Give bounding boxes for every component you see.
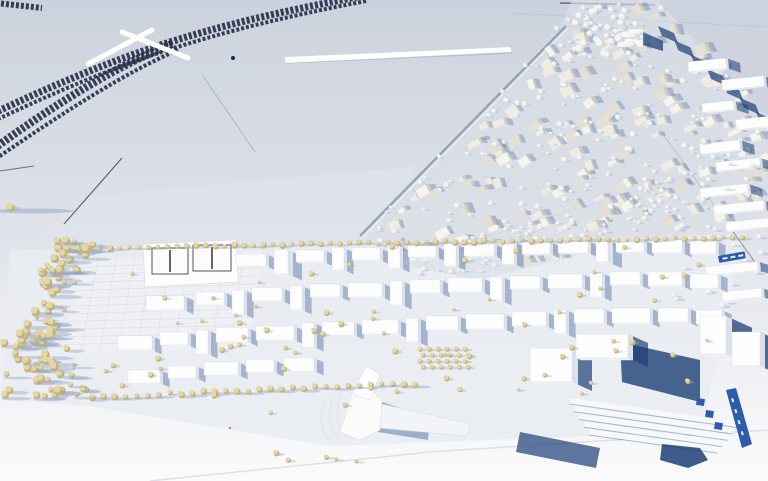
model-tree [605, 237, 609, 241]
model-tree [521, 376, 525, 380]
model-tree [629, 339, 634, 344]
model-tree [581, 5, 585, 9]
model-tree [1, 391, 7, 397]
model-tree [658, 6, 663, 11]
model-tree [691, 114, 695, 118]
building-side [184, 296, 187, 311]
model-tree [32, 391, 38, 397]
building-top [362, 320, 398, 334]
model-tree [652, 192, 654, 194]
model-tree [648, 208, 652, 212]
building-front [410, 293, 443, 294]
model-tree [443, 238, 447, 242]
model-tree [705, 195, 708, 198]
model-tree [625, 237, 628, 240]
building-side [604, 309, 607, 324]
model-tree [448, 269, 452, 273]
model-tree [592, 8, 596, 12]
model-tree [309, 271, 313, 275]
model-tree [691, 151, 694, 154]
model-tree [645, 185, 649, 189]
model-tree [652, 169, 656, 173]
model-tree [430, 365, 434, 369]
model-tree [404, 239, 408, 243]
model-tree [549, 132, 552, 135]
model-tree [0, 338, 6, 344]
model-tree [111, 393, 117, 399]
building-front [352, 260, 383, 261]
model-tree [597, 4, 601, 8]
model-tree [519, 186, 522, 189]
building-top [256, 326, 294, 340]
building-side [382, 283, 385, 298]
model-tree [573, 37, 575, 39]
model-tree [630, 131, 635, 136]
model-tree [203, 242, 208, 247]
model-building [554, 310, 576, 338]
model-tree [521, 208, 523, 210]
building-side [402, 281, 405, 306]
model-tree [81, 244, 88, 251]
model-tree [342, 402, 346, 406]
model-tree [445, 359, 449, 363]
model-tree [438, 188, 441, 191]
model-tree [200, 319, 203, 322]
model-tree [347, 262, 350, 265]
model-tree [223, 388, 227, 392]
model-tree [632, 228, 635, 231]
building-front [658, 322, 691, 323]
model-tree [701, 197, 705, 201]
model-tree [613, 348, 617, 352]
model-tree [721, 235, 725, 239]
model-tree [665, 69, 669, 73]
model-tree [502, 140, 505, 143]
model-tree [622, 245, 626, 249]
building-side [582, 274, 585, 289]
model-tree [598, 232, 601, 235]
model-tree [488, 201, 492, 205]
model-tree [615, 237, 619, 241]
model-building [502, 242, 524, 268]
model-tree [156, 245, 160, 249]
model-tree [528, 222, 531, 225]
model-tree [517, 234, 519, 236]
building-top [464, 244, 494, 256]
model-tree [726, 300, 729, 303]
model-tree [72, 279, 76, 283]
model-tree [617, 3, 620, 6]
building-front [466, 329, 507, 330]
building-top [502, 242, 514, 264]
model-building [390, 281, 412, 309]
model-tree [678, 169, 682, 173]
model-tree [667, 177, 671, 181]
model-tree [577, 292, 582, 297]
model-tree [156, 392, 160, 396]
model-tree [433, 239, 438, 244]
model-tree [345, 383, 350, 388]
building-side [314, 358, 317, 372]
model-tree [730, 282, 733, 285]
model-tree [43, 318, 48, 323]
building-front [548, 288, 585, 289]
model-tree [107, 245, 112, 250]
model-tree [241, 242, 246, 247]
model-tree [283, 345, 287, 349]
building-top [196, 330, 208, 354]
model-tree [589, 381, 592, 384]
model-tree [643, 189, 646, 192]
building-side [482, 278, 485, 293]
model-tree [286, 457, 290, 461]
building-side [354, 322, 357, 336]
model-tree [557, 121, 562, 126]
model-tree [48, 387, 52, 391]
model-tree [500, 239, 504, 243]
model-tree [418, 180, 422, 184]
model-tree [439, 365, 443, 369]
model-tree [632, 86, 635, 89]
building-top [118, 336, 152, 350]
model-tree [130, 271, 133, 274]
model-tree [692, 236, 696, 240]
building-front [448, 292, 485, 293]
building-side [458, 316, 461, 331]
model-tree [50, 254, 57, 261]
model-tree [211, 392, 216, 397]
model-tree [554, 167, 556, 169]
model-tree [513, 248, 518, 253]
model-tree [566, 18, 569, 21]
model-tree [523, 63, 526, 66]
model-tree [234, 388, 239, 393]
building-side [760, 332, 765, 368]
building-side [640, 272, 643, 286]
model-tree [628, 204, 632, 208]
building-side [418, 318, 421, 343]
model-tree [596, 138, 599, 141]
model-tree [517, 388, 520, 391]
model-tree [604, 83, 607, 86]
model-tree [608, 38, 614, 44]
building-side [588, 241, 591, 254]
building-front [296, 262, 327, 263]
building-front [574, 323, 607, 324]
model-tree [312, 383, 317, 388]
model-tree [598, 286, 601, 289]
model-tree [725, 74, 728, 77]
model-tree [584, 228, 586, 230]
model-tree [466, 353, 471, 358]
model-tree [385, 211, 387, 213]
model-tree [613, 29, 617, 33]
model-building [290, 286, 312, 314]
model-tree [371, 316, 374, 319]
model-tree [443, 353, 446, 356]
model-tree [546, 182, 549, 185]
model-tree [571, 125, 574, 128]
blue-panel [705, 410, 714, 418]
model-tree [228, 343, 233, 348]
model-tree [41, 350, 48, 357]
model-tree [394, 240, 399, 245]
model-tree [680, 78, 685, 83]
model-tree [539, 130, 543, 134]
model-tree [666, 193, 670, 197]
model-building [196, 330, 218, 358]
building-side [344, 248, 347, 271]
model-tree [629, 197, 632, 200]
model-tree [756, 234, 760, 238]
model-tree [119, 383, 123, 387]
model-tree [603, 51, 609, 57]
building-front [464, 256, 497, 257]
model-tree [269, 411, 272, 414]
model-tree [649, 199, 653, 203]
building-top [700, 316, 726, 354]
model-tree [710, 155, 714, 159]
model-tree [722, 216, 725, 219]
model-tree [514, 101, 518, 105]
building-top [466, 314, 504, 329]
model-tree [611, 156, 615, 160]
model-tree [522, 322, 526, 326]
model-tree [575, 45, 581, 51]
model-tree [559, 43, 563, 47]
model-tree [479, 270, 482, 273]
model-tree [673, 195, 677, 199]
building-front [284, 371, 317, 372]
model-tree [256, 386, 261, 391]
model-tree [598, 23, 601, 26]
model-tree [251, 243, 255, 247]
model-tree [612, 77, 616, 81]
model-tree [731, 242, 735, 246]
building-top [444, 244, 456, 266]
model-tree [665, 205, 668, 208]
model-tree [700, 139, 705, 144]
model-tree [562, 83, 566, 87]
model-tree [586, 236, 591, 241]
model-tree [254, 304, 257, 307]
building-side [436, 246, 439, 258]
model-tree [572, 46, 576, 50]
building-top [348, 283, 382, 297]
building-side [440, 280, 443, 294]
model-tree [758, 250, 763, 255]
city-model-scene [0, 0, 768, 481]
model-tree [412, 382, 417, 387]
model-tree [655, 181, 658, 184]
model-tree [588, 54, 591, 57]
model-tree [518, 201, 522, 205]
building-side [244, 290, 247, 315]
model-tree [446, 218, 450, 222]
building-front [146, 310, 187, 311]
building-front [252, 301, 285, 302]
building-front [362, 334, 401, 335]
building-front [168, 378, 199, 379]
model-tree [626, 50, 631, 55]
model-tree [602, 223, 605, 226]
building-top [302, 323, 314, 347]
building-top [426, 316, 458, 330]
model-tree [685, 378, 689, 382]
building-side [266, 254, 269, 267]
model-tree [603, 230, 606, 233]
model-tree [610, 15, 615, 20]
model-tree [728, 162, 731, 165]
model-tree [560, 354, 564, 358]
model-tree [270, 242, 274, 246]
model-tree [596, 236, 601, 241]
model-tree [559, 133, 562, 136]
model-tree [290, 242, 293, 245]
building-front [216, 342, 251, 343]
model-tree [234, 313, 237, 316]
model-tree [704, 207, 706, 209]
model-tree [586, 183, 589, 186]
model-tree [506, 164, 510, 168]
model-tree [59, 249, 66, 256]
model-building [332, 248, 354, 274]
model-tree [463, 347, 467, 351]
model-tree [448, 365, 452, 369]
model-tree [54, 237, 60, 243]
model-tree [409, 188, 411, 190]
building-top [232, 290, 244, 314]
model-tree [750, 163, 754, 167]
model-tree [696, 262, 700, 266]
model-tree [587, 31, 592, 36]
model-tree [146, 245, 150, 249]
track-marker [231, 56, 235, 60]
building-side [502, 277, 505, 302]
model-tree [22, 356, 29, 363]
model-tree [583, 188, 585, 190]
model-tree [468, 213, 471, 216]
building-top [690, 274, 718, 288]
building-front [510, 289, 543, 290]
model-tree [372, 309, 375, 312]
building-side [546, 312, 549, 327]
model-tree [211, 296, 215, 300]
model-tree [127, 245, 131, 249]
model-tree [484, 153, 486, 155]
model-tree [241, 335, 245, 339]
model-tree [347, 240, 351, 244]
model-tree [583, 120, 586, 123]
model-tree [484, 115, 486, 117]
model-tree [608, 7, 613, 12]
model-tree [103, 369, 107, 373]
model-tree [481, 261, 484, 264]
building-side [602, 273, 605, 298]
model-tree [465, 237, 467, 239]
model-tree [583, 22, 587, 26]
model-tree [672, 293, 675, 296]
model-tree [444, 375, 449, 380]
model-tree [231, 241, 237, 247]
model-tree [644, 163, 647, 166]
building-front [348, 297, 385, 298]
building-front [648, 286, 685, 287]
model-tree [682, 236, 687, 241]
model-tree [298, 240, 303, 245]
model-tree [368, 385, 372, 389]
model-tree [615, 115, 619, 119]
model-tree [334, 384, 339, 389]
model-tree [719, 303, 724, 308]
model-tree [155, 355, 160, 360]
building-side [456, 244, 459, 267]
model-tree [356, 239, 361, 244]
model-building [302, 323, 324, 351]
model-tree [664, 180, 667, 183]
model-tree [491, 239, 494, 242]
model-tree [136, 245, 140, 249]
building-front [204, 375, 241, 376]
model-tree [377, 226, 380, 229]
model-tree [604, 24, 610, 30]
model-tree [607, 204, 612, 209]
model-tree [5, 386, 11, 392]
building-top [690, 241, 716, 254]
building-top [490, 277, 502, 301]
model-tree [554, 26, 558, 30]
model-tree [562, 196, 567, 201]
model-tree [465, 152, 468, 155]
model-tree [189, 390, 194, 395]
model-tree [561, 103, 564, 106]
model-tree [653, 236, 658, 241]
building-top [196, 292, 224, 305]
model-tree [418, 359, 422, 363]
model-tree [454, 359, 458, 363]
model-tree [267, 385, 272, 390]
model-tree [273, 450, 278, 455]
blue-panel [714, 422, 723, 430]
building-front [530, 382, 578, 385]
model-tree [627, 217, 630, 220]
model-tree [502, 220, 506, 224]
building-front [236, 266, 269, 267]
model-tree [636, 220, 639, 223]
building-top [658, 308, 688, 322]
model-tree [546, 152, 548, 154]
building-side [494, 244, 497, 257]
model-tree [630, 32, 635, 37]
model-tree [436, 359, 440, 363]
model-tree [427, 359, 431, 363]
model-tree [324, 454, 328, 458]
model-tree [457, 387, 461, 391]
model-tree [739, 235, 743, 239]
building-front [576, 358, 633, 360]
model-tree [577, 237, 581, 241]
building-top [310, 284, 340, 297]
model-tree [62, 279, 66, 283]
model-tree [589, 176, 591, 178]
building-top [406, 318, 418, 342]
building-front [558, 253, 591, 254]
model-tree [63, 345, 68, 350]
model-tree [679, 223, 684, 228]
building-top [610, 272, 640, 285]
model-tree [200, 388, 205, 393]
model-tree [263, 327, 268, 332]
